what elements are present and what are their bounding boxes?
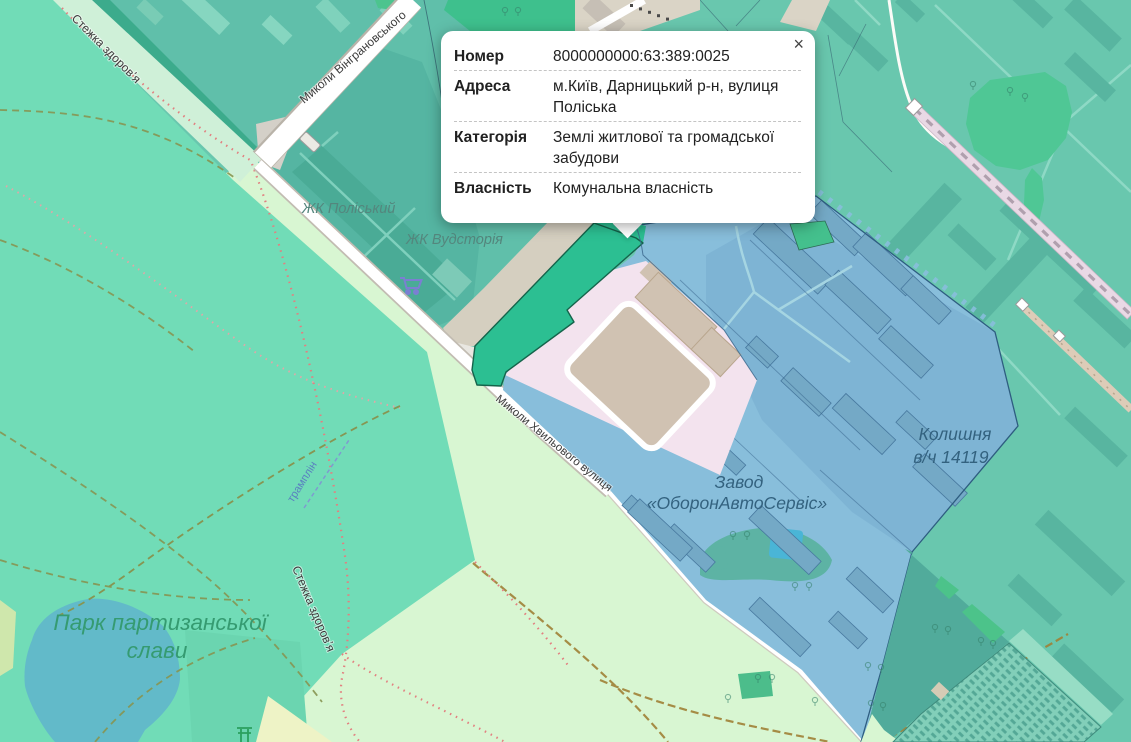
svg-text:ЖК Поліський: ЖК Поліський <box>301 201 395 217</box>
svg-text:Колишня: Колишня <box>919 424 992 444</box>
svg-text:слави: слави <box>127 638 188 663</box>
svg-text:Завод: Завод <box>715 472 764 492</box>
svg-text:в/ч 14119: в/ч 14119 <box>913 447 989 467</box>
svg-text:Парк партизанської: Парк партизанської <box>53 610 269 635</box>
svg-text:ЖК Вудсторія: ЖК Вудсторія <box>405 232 503 248</box>
svg-text:«ОборонАвтоСервіс»: «ОборонАвтоСервіс» <box>647 493 828 513</box>
